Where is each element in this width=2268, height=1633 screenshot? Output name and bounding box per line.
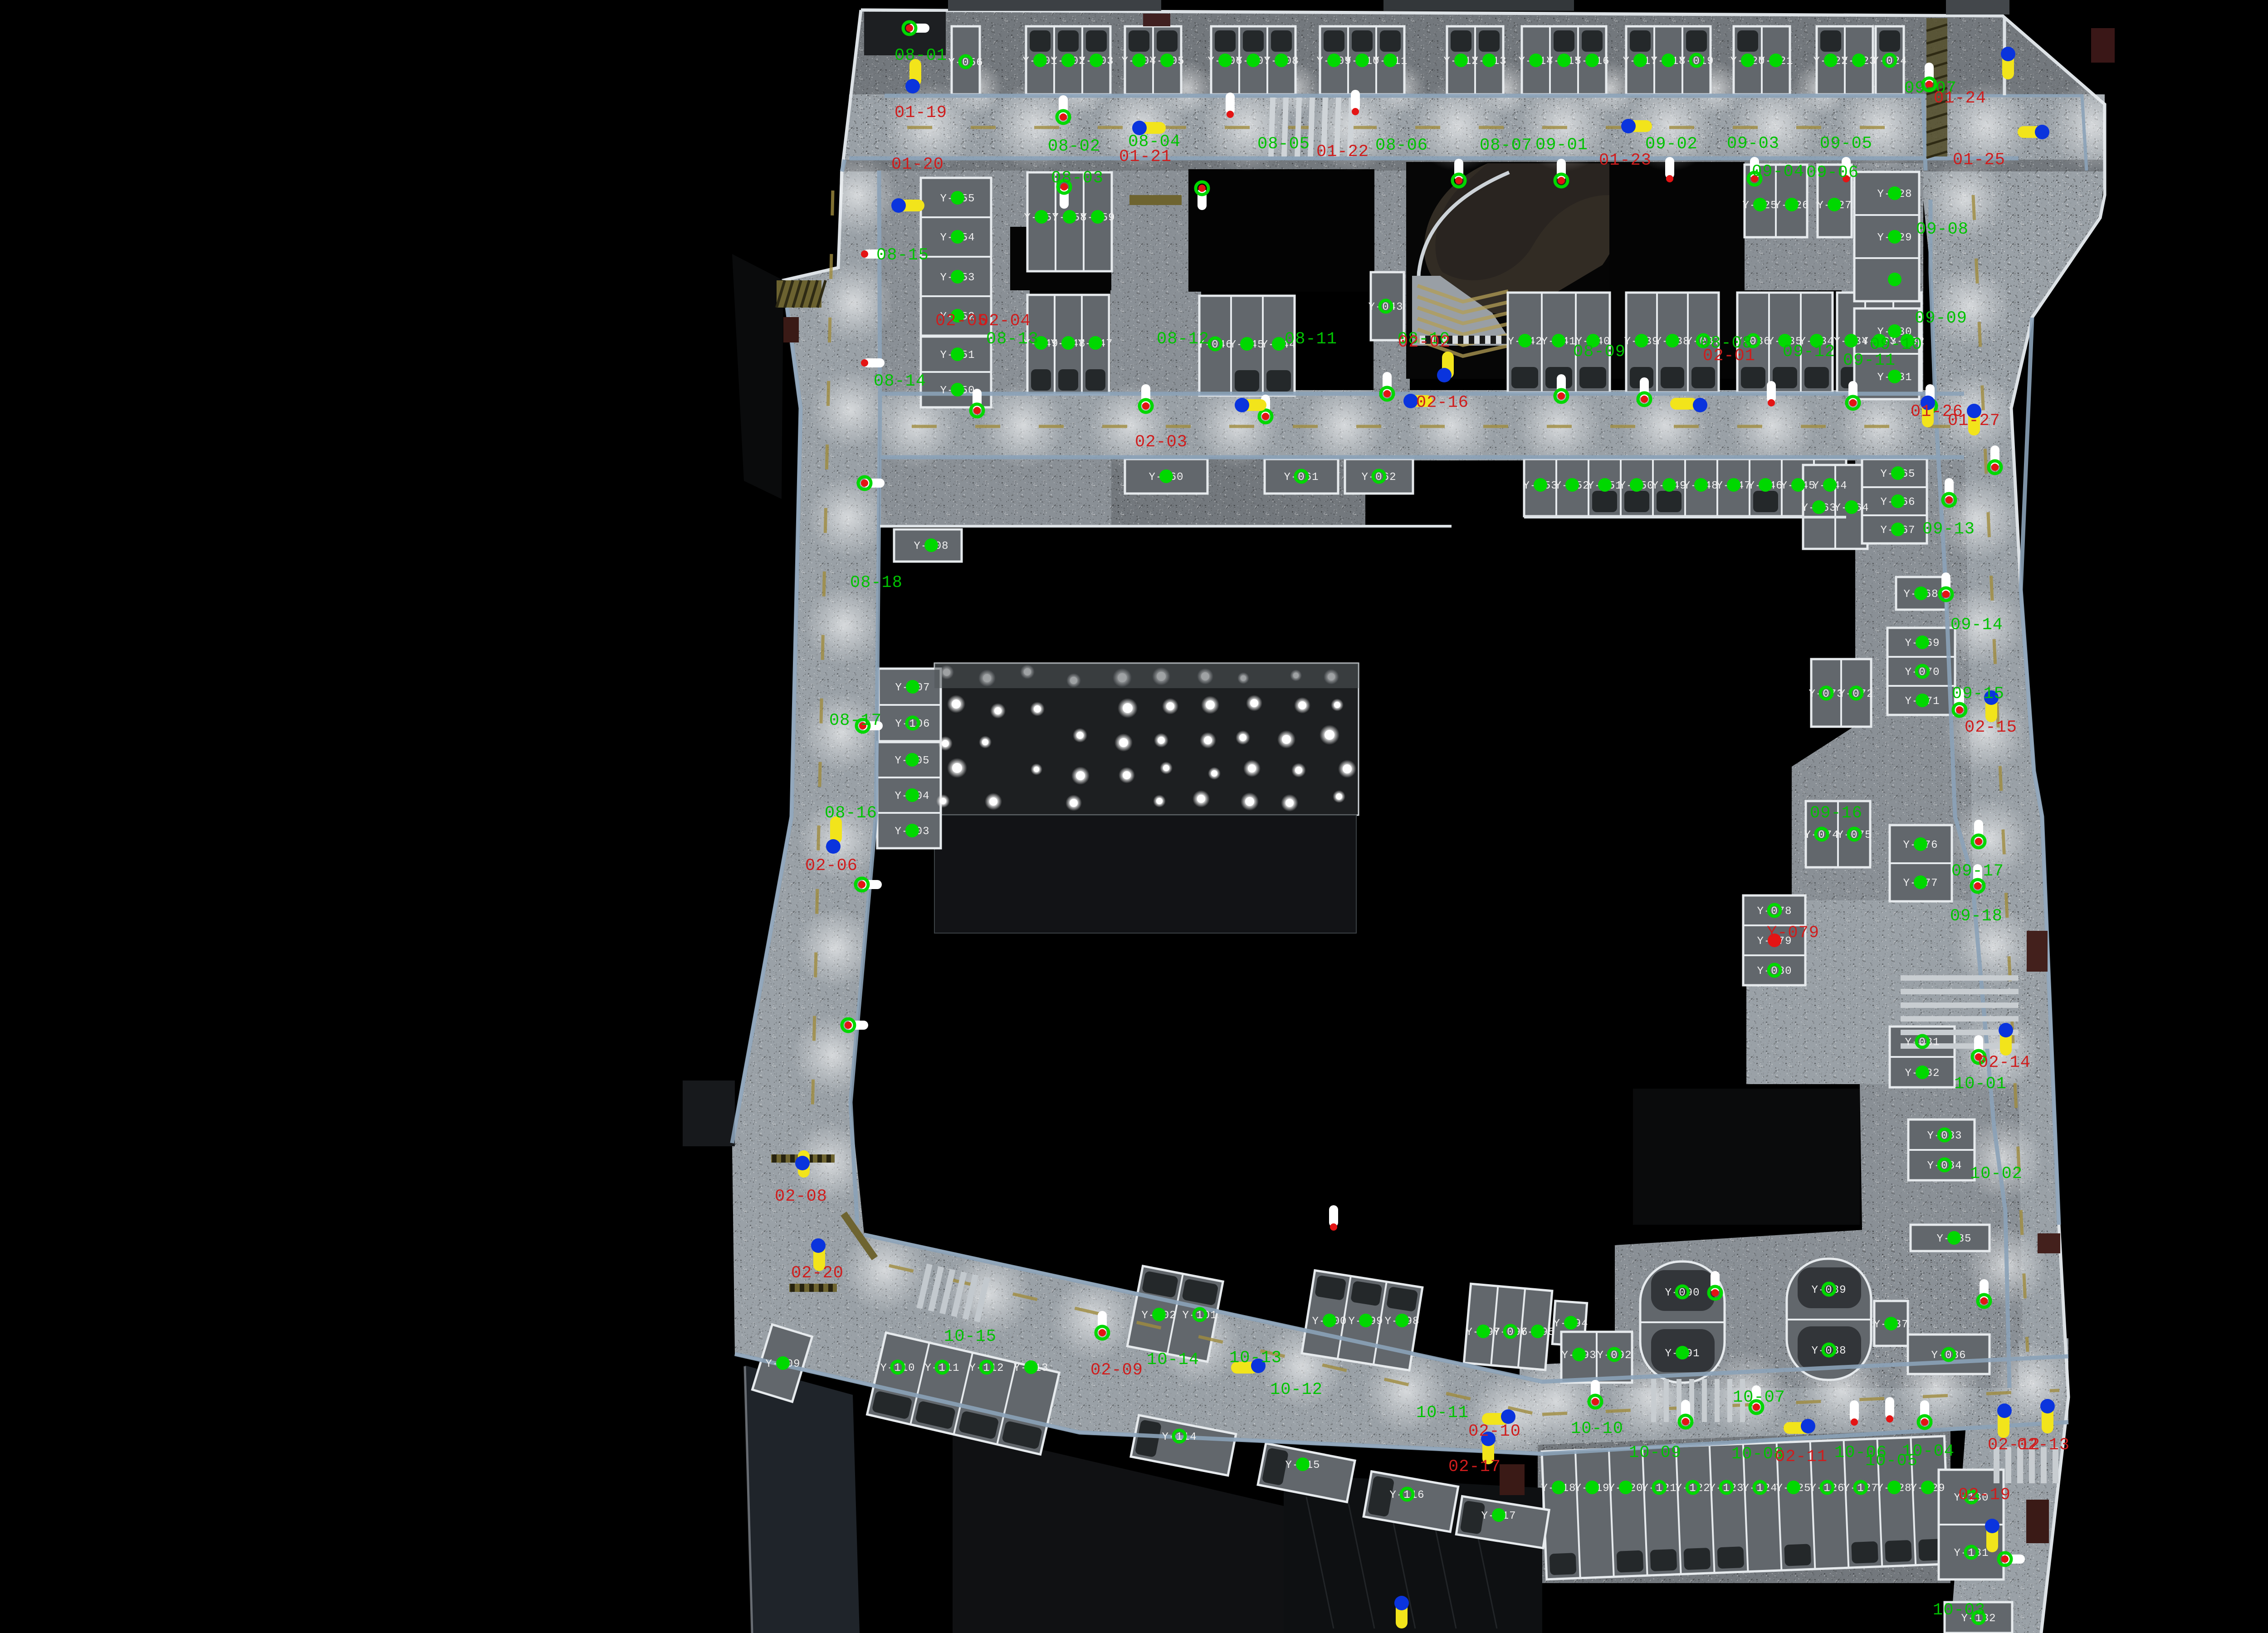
svg-text:08-06: 08-06 [1375, 136, 1428, 155]
svg-text:08-15: 08-15 [876, 246, 929, 265]
svg-text:02-02: 02-02 [1398, 333, 1451, 352]
svg-text:08-09: 08-09 [1573, 342, 1626, 362]
svg-text:08-12: 08-12 [1157, 330, 1209, 349]
svg-text:10-12: 10-12 [1270, 1380, 1323, 1399]
svg-text:08-13: 08-13 [986, 330, 1039, 349]
svg-text:09-15: 09-15 [1952, 684, 2004, 704]
svg-text:09-12: 09-12 [1783, 342, 1835, 362]
svg-text:01-19: 01-19 [894, 103, 947, 122]
svg-text:09-11: 09-11 [1843, 351, 1896, 370]
svg-text:08-03: 08-03 [1051, 169, 1104, 188]
svg-text:01-23: 01-23 [1599, 151, 1652, 170]
svg-text:09-16: 09-16 [1810, 804, 1862, 823]
svg-text:02-06: 02-06 [805, 856, 858, 875]
svg-text:10-01: 10-01 [1954, 1075, 2007, 1094]
svg-text:02-13: 02-13 [2017, 1436, 2070, 1455]
svg-text:08-14: 08-14 [874, 372, 926, 391]
svg-text:10-04: 10-04 [1902, 1442, 1955, 1461]
svg-text:Y-079: Y-079 [1767, 924, 1819, 943]
svg-text:08-11: 08-11 [1285, 330, 1337, 349]
svg-text:09-17: 09-17 [1951, 862, 2004, 881]
svg-text:09-04: 09-04 [1752, 162, 1804, 181]
svg-text:02-08: 02-08 [775, 1187, 827, 1206]
svg-text:01-25: 01-25 [1953, 151, 2005, 170]
svg-text:09-14: 09-14 [1950, 616, 2003, 635]
svg-text:09-01: 09-01 [1535, 136, 1588, 155]
svg-text:01-24: 01-24 [1934, 89, 1986, 108]
svg-text:08-17: 08-17 [829, 711, 882, 730]
svg-text:01-27: 01-27 [1948, 411, 2000, 430]
svg-text:10-15: 10-15 [944, 1327, 997, 1346]
svg-text:01-21: 01-21 [1119, 147, 1172, 166]
svg-text:08-07: 08-07 [1480, 136, 1532, 155]
svg-text:09-09: 09-09 [1915, 309, 1967, 328]
svg-text:02-09: 02-09 [1090, 1361, 1143, 1380]
svg-text:09-02: 09-02 [1645, 135, 1698, 154]
svg-text:10-02: 10-02 [1970, 1164, 2023, 1183]
svg-text:08-05: 08-05 [1257, 135, 1310, 154]
svg-text:10-11: 10-11 [1416, 1403, 1469, 1423]
svg-text:01-20: 01-20 [891, 155, 944, 174]
svg-text:02-19: 02-19 [1958, 1486, 2011, 1505]
svg-text:10-03: 10-03 [1933, 1601, 1985, 1620]
svg-text:02-14: 02-14 [1978, 1053, 2031, 1072]
svg-text:10-09: 10-09 [1629, 1443, 1681, 1462]
svg-text:09-03: 09-03 [1727, 134, 1779, 153]
svg-text:02-04: 02-04 [978, 312, 1031, 331]
svg-text:02-20: 02-20 [791, 1264, 844, 1283]
svg-text:09-13: 09-13 [1922, 520, 1975, 539]
svg-text:08-16: 08-16 [825, 804, 877, 823]
svg-text:08-01: 08-01 [894, 46, 947, 65]
svg-text:09-18: 09-18 [1950, 907, 2003, 926]
svg-text:08-02: 08-02 [1048, 137, 1100, 156]
svg-text:02-15: 02-15 [1965, 718, 2017, 737]
svg-text:02-11: 02-11 [1775, 1447, 1828, 1467]
svg-text:09-06: 09-06 [1806, 163, 1859, 182]
svg-text:02-16: 02-16 [1416, 393, 1469, 412]
svg-text:10-14: 10-14 [1147, 1350, 1199, 1369]
svg-text:02-17: 02-17 [1448, 1457, 1501, 1477]
svg-text:09-05: 09-05 [1820, 134, 1872, 153]
svg-text:10-10: 10-10 [1571, 1419, 1623, 1438]
svg-text:02-10: 02-10 [1468, 1422, 1521, 1441]
svg-text:02-03: 02-03 [1135, 433, 1188, 452]
svg-text:10-07: 10-07 [1733, 1388, 1785, 1407]
svg-text:10-13: 10-13 [1229, 1349, 1282, 1368]
svg-text:01-22: 01-22 [1316, 142, 1369, 161]
svg-text:09-08: 09-08 [1916, 220, 1969, 239]
svg-text:02-01: 02-01 [1703, 347, 1755, 366]
svg-text:08-18: 08-18 [850, 573, 903, 592]
